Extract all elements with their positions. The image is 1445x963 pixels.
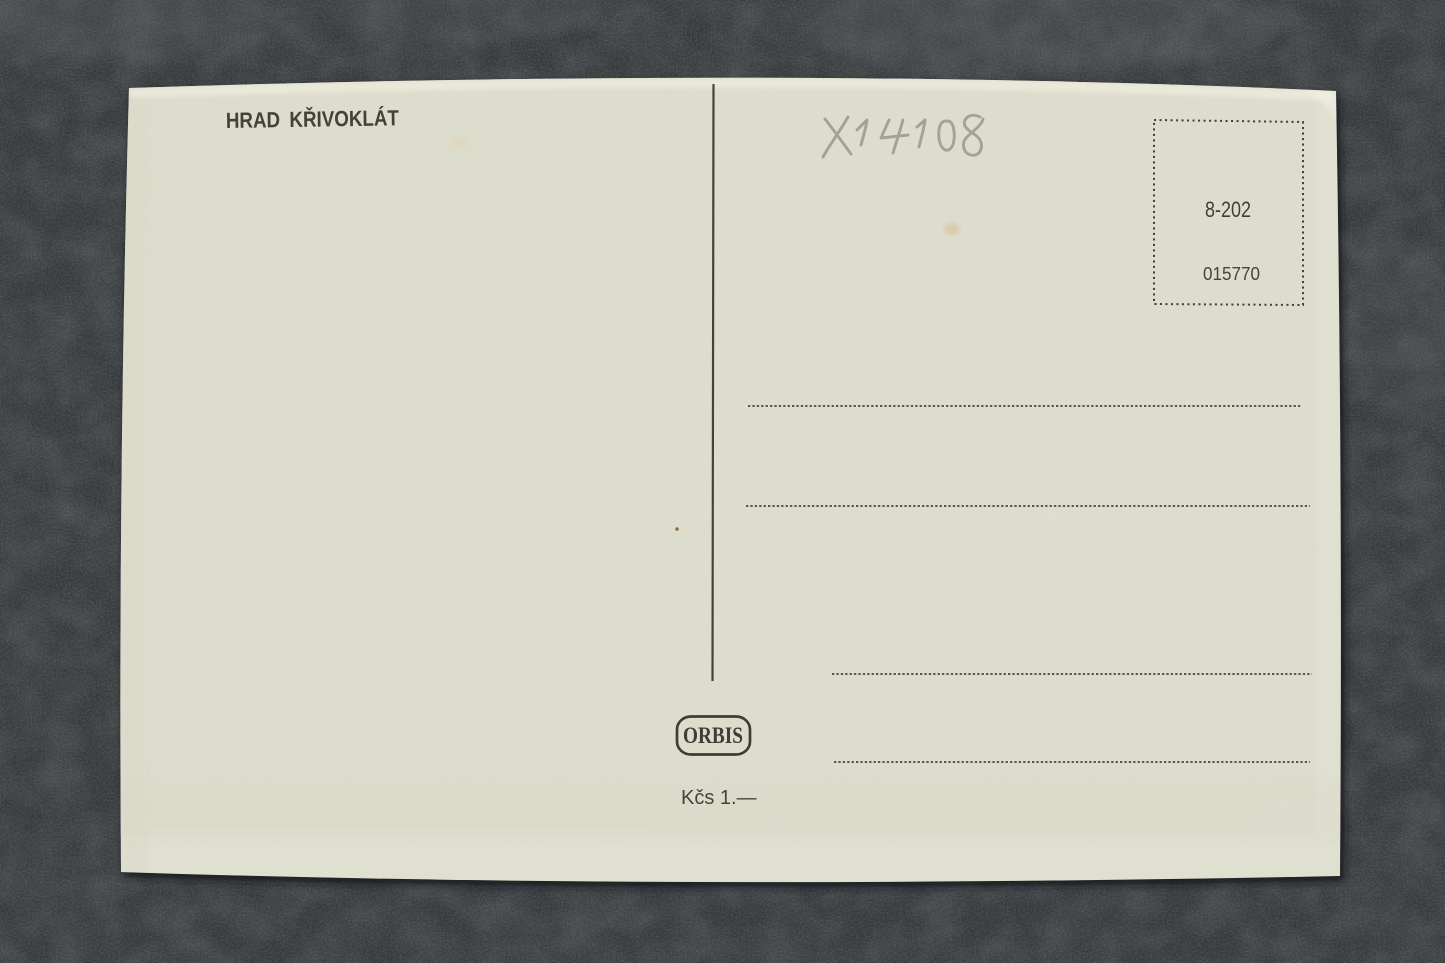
- svg-text:8-202: 8-202: [1205, 197, 1251, 222]
- svg-text:015770: 015770: [1203, 264, 1260, 284]
- svg-text:ORBIS: ORBIS: [683, 723, 743, 748]
- svg-text:HRAD KŘIVOKLÁT: HRAD KŘIVOKLÁT: [226, 105, 400, 133]
- svg-text:Kčs 1.—: Kčs 1.—: [681, 787, 757, 809]
